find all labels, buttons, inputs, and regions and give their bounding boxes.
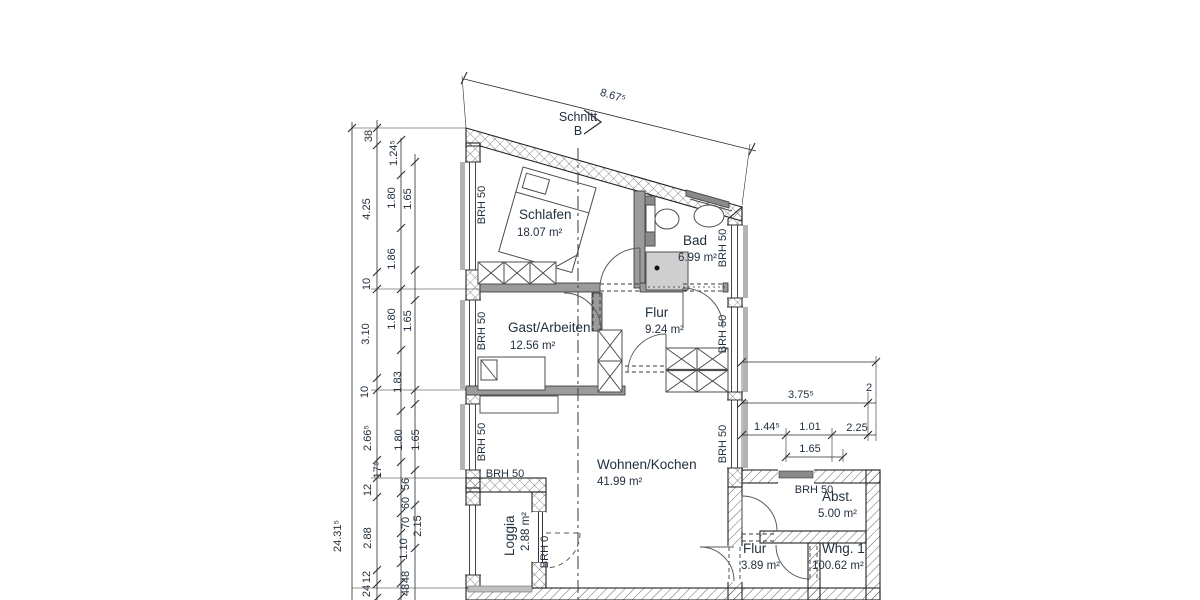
dimension-label: 1.80 xyxy=(386,308,398,329)
wardrobe-column xyxy=(598,330,622,392)
dimension-label: 1.65 xyxy=(402,188,414,209)
dimension-label: 1.24⁵ xyxy=(388,140,400,166)
brh-label: BRH 50 xyxy=(717,425,729,464)
dimension-label: 2.66⁵ xyxy=(362,425,374,451)
dimension-label: 1.65 xyxy=(410,429,422,450)
window-bad xyxy=(727,225,748,298)
room-area-label: 2.88 m² xyxy=(520,512,532,551)
dimension-label: 2 xyxy=(866,382,872,394)
loggia-wall-stub-upper xyxy=(532,492,546,512)
window-loggia-bottom xyxy=(468,586,532,592)
dimension-label: 48 xyxy=(400,584,412,596)
floor-plan-page: Schlafen18.07 m²Bad6.99 m²Flur9.24 m²Gas… xyxy=(0,0,1200,600)
dimension-label: 2.15 xyxy=(412,515,424,536)
room-area-label: 18.07 m² xyxy=(517,227,563,239)
room-area-label: 41.99 m² xyxy=(597,476,643,488)
window-wohnen-right xyxy=(727,400,748,468)
right-wall-lower xyxy=(728,487,742,600)
dimension-label: 1.65 xyxy=(402,310,414,331)
dimension-label: 1.44⁵ xyxy=(754,421,780,433)
dimension-label: 1.10 xyxy=(398,538,410,559)
dimension-label: 12 xyxy=(361,571,373,583)
dimension-label: 70 xyxy=(400,517,412,529)
dimension-label: 60 xyxy=(400,497,412,509)
dimension-label: 1.86 xyxy=(386,248,398,269)
window-flur xyxy=(727,307,748,392)
brh-label: BRH 0 xyxy=(539,536,551,568)
dimension-label: 8.67⁵ xyxy=(599,87,627,106)
abst-right-wall xyxy=(866,470,880,600)
room-name-label: Wohnen/Kochen xyxy=(597,457,697,472)
wardrobe-schlafen xyxy=(478,262,556,284)
dimension-label: 4.25 xyxy=(361,198,373,219)
door-abst xyxy=(742,496,777,531)
room-name-label: Whg. 1 xyxy=(822,541,865,556)
wardrobe-flur xyxy=(666,348,728,392)
room-name-label: Bad xyxy=(683,233,707,248)
door-loggia xyxy=(546,533,580,568)
room-area-label: 12.56 m² xyxy=(510,340,556,352)
door-flur-whg xyxy=(776,545,810,579)
kitchen-counter xyxy=(480,396,558,413)
dimension-label: 1.65 xyxy=(799,443,820,455)
toilet xyxy=(646,205,679,232)
dimension-label: 1.80 xyxy=(393,429,405,450)
room-name-label: Loggia xyxy=(502,515,517,556)
dimension-label: 38 xyxy=(363,130,375,142)
dimension-label: 1.83 xyxy=(392,371,404,392)
bed-gast xyxy=(478,357,545,390)
dimension-label: 2.25 xyxy=(846,422,867,434)
dimension-label: 3.10 xyxy=(360,323,372,344)
room-name-label: Gast/Arbeiten xyxy=(508,320,591,335)
dimension-label: 24 xyxy=(361,585,373,597)
brh-label: BRH 50 xyxy=(717,229,729,268)
window-abst xyxy=(778,469,814,484)
room-name-label: Flur xyxy=(743,541,767,556)
loggia-top-wall xyxy=(466,478,546,492)
section-marker-label: Schnitt xyxy=(559,110,598,124)
brh-label: BRH 50 xyxy=(476,423,488,462)
room-area-label: 3.89 m² xyxy=(741,560,780,572)
room-area-label: 9.24 m² xyxy=(645,324,684,336)
dimension-label: 1.80 xyxy=(386,187,398,208)
brh-label: BRH 50 xyxy=(476,186,488,225)
dimension-label: 10 xyxy=(361,278,373,290)
dimension-label: 24.31⁵ xyxy=(332,520,344,552)
brh-label: BRH 50 xyxy=(717,315,729,354)
dimension-label: 3.75⁵ xyxy=(788,389,814,401)
brh-label: BRH 50 xyxy=(476,312,488,351)
room-area-label: 100.62 m² xyxy=(812,560,864,572)
window-loggia-left xyxy=(465,505,481,575)
room-name-label: Schlafen xyxy=(519,207,572,222)
brh-label: BRH 50 xyxy=(795,484,834,496)
dimension-label: 48 xyxy=(400,571,412,583)
dimension-label: 12 xyxy=(362,484,374,496)
separating-wall-c xyxy=(723,283,728,292)
dimension-label: 10 xyxy=(359,386,371,398)
room-name-label: Flur xyxy=(645,305,669,320)
dimension-label: 1.01 xyxy=(799,421,820,433)
room-area-label: 6.99 m² xyxy=(678,252,717,264)
section-marker-label: B xyxy=(574,124,582,138)
dimension-label: 17⁵ xyxy=(372,462,384,479)
dimension-label: 56 xyxy=(400,478,412,490)
brh-label: BRH 50 xyxy=(486,468,525,480)
dimension-label: 2.88 xyxy=(362,527,374,548)
room-area-label: 5.00 m² xyxy=(818,508,857,520)
floor-plan-svg: Schlafen18.07 m²Bad6.99 m²Flur9.24 m²Gas… xyxy=(0,0,1200,600)
